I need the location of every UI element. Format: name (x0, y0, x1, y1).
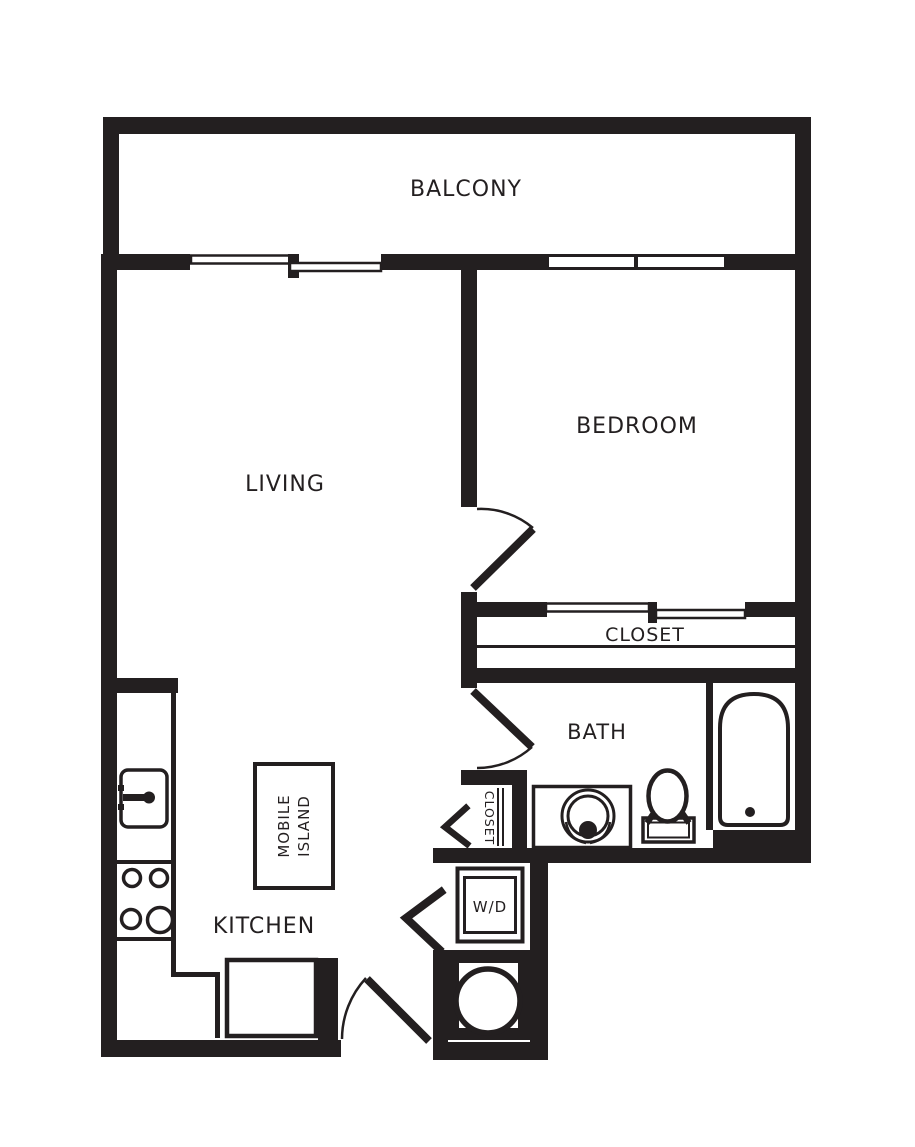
washer-drum-icon (456, 969, 520, 1033)
bedroom-partition-wall (461, 270, 477, 507)
bathroom-vanity (534, 787, 631, 848)
faucet-handle-icon (118, 804, 124, 810)
balcony-label: BALCONY (410, 177, 522, 202)
refrigerator (227, 960, 316, 1036)
floor-plan-page: BALCONY LIVING BEDROOM CLOSET BATH KITCH… (0, 0, 915, 1147)
tub-partition (706, 683, 713, 830)
closet-bottom-wall (461, 668, 811, 683)
bedroom-window (543, 254, 730, 270)
bottom-wall-left (101, 1040, 341, 1057)
closet-label: CLOSET (605, 624, 685, 646)
laundry-right-wall (530, 848, 548, 1060)
tub-drain-icon (745, 807, 755, 817)
balcony-sliding-door (191, 254, 381, 278)
exterior-wall-right (795, 254, 811, 863)
floor-plan-svg: BALCONY LIVING BEDROOM CLOSET BATH KITCH… (0, 0, 915, 1147)
sink-faucet-icon (579, 821, 597, 839)
entry-pillar (318, 958, 338, 1057)
bedroom-door (473, 509, 533, 588)
washer-dryer-label: W/D (473, 898, 507, 916)
laundry-accordion-door (406, 892, 441, 949)
toilet-bowl-icon (649, 771, 687, 822)
kitchen-counter (117, 693, 220, 1038)
svg-text:ISLAND: ISLAND (295, 795, 313, 857)
washer-unit (447, 963, 530, 1040)
bath-closet (497, 788, 504, 846)
closet-accordion-door (445, 808, 467, 844)
svg-text:MOBILE: MOBILE (275, 794, 293, 857)
top-wall (101, 254, 811, 278)
mobile-island (255, 764, 333, 888)
faucet-handle-icon (118, 785, 124, 791)
kitchen-label: KITCHEN (213, 914, 315, 939)
kitchen-sink (118, 770, 167, 827)
closet-sliding-door (477, 602, 795, 623)
bath-bottom-wall (433, 848, 811, 863)
bathtub (713, 694, 797, 848)
living-label: LIVING (245, 472, 325, 497)
bedroom-label: BEDROOM (576, 414, 698, 439)
bath-closet-label: CLOSET (482, 791, 497, 846)
stove-burners (122, 870, 173, 933)
bath-door (473, 691, 532, 768)
entry-door (342, 978, 429, 1041)
counter-wall-stub (108, 678, 178, 693)
bath-label: BATH (567, 720, 627, 744)
counter-edge (171, 693, 176, 976)
tub-base (713, 830, 797, 848)
exterior-wall-left (101, 254, 117, 1055)
toilet (643, 771, 694, 843)
